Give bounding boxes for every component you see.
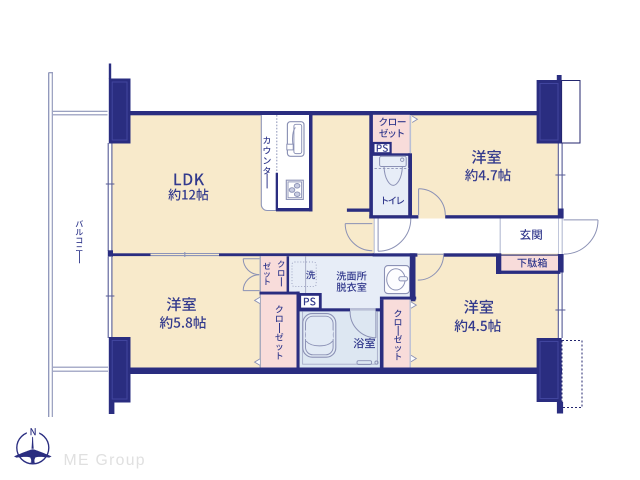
svg-text:ME Group: ME Group — [64, 452, 146, 469]
